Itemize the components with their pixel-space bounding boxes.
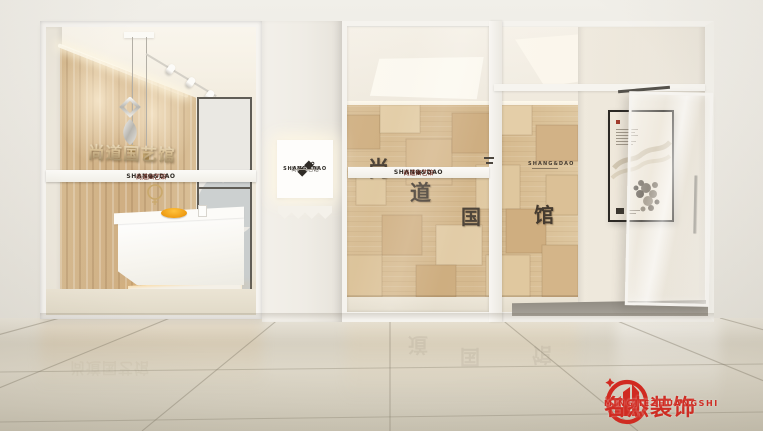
storefront-render: 尚道国艺馆 SHANG&DAO · (0, 0, 763, 431)
open-glass-door (625, 91, 713, 307)
door-mid-rail (199, 187, 250, 189)
glass-marker (486, 162, 493, 164)
lightbox-divider (295, 169, 315, 170)
ring-ornament-icon (146, 183, 164, 207)
brand-tape-banner-left: ·尚道国艺馆· ◈ SHANG&DAO ◈ ·尚道国艺馆· (46, 170, 256, 182)
reception-desk (118, 217, 244, 285)
glass-marker (484, 157, 494, 159)
window-mullion (489, 21, 502, 322)
door-handle (693, 176, 696, 234)
lightbox-sign: ·尚道国艺馆· SHANG&DAO (277, 140, 333, 198)
tape-cn-text: ·尚道国艺馆· (402, 168, 436, 177)
desk-card (198, 205, 207, 217)
ceiling-fixture (124, 32, 154, 38)
watermark: 名杰装饰 ® MINGJIEZHUANGSHI (604, 368, 760, 428)
storefront-base-shadow (40, 313, 714, 320)
left-room-floor (46, 289, 256, 315)
zigzag-brochure-tray (278, 206, 332, 219)
orange-bowl (161, 208, 187, 218)
brand-tape-banner-middle: ·尚道国艺馆· ◈ SHANG&DAO ◈ ·尚道国艺馆· (348, 167, 489, 178)
wall-letters-3d: 尚道国艺馆 (88, 139, 201, 167)
tape-cn-text: ·尚道国艺馆· (134, 172, 168, 181)
center-pillar: ·尚道国艺馆· SHANG&DAO (262, 21, 342, 322)
watermark-name-en: MINGJIEZHUANGSHI (604, 400, 719, 408)
transom-bar (494, 84, 705, 91)
